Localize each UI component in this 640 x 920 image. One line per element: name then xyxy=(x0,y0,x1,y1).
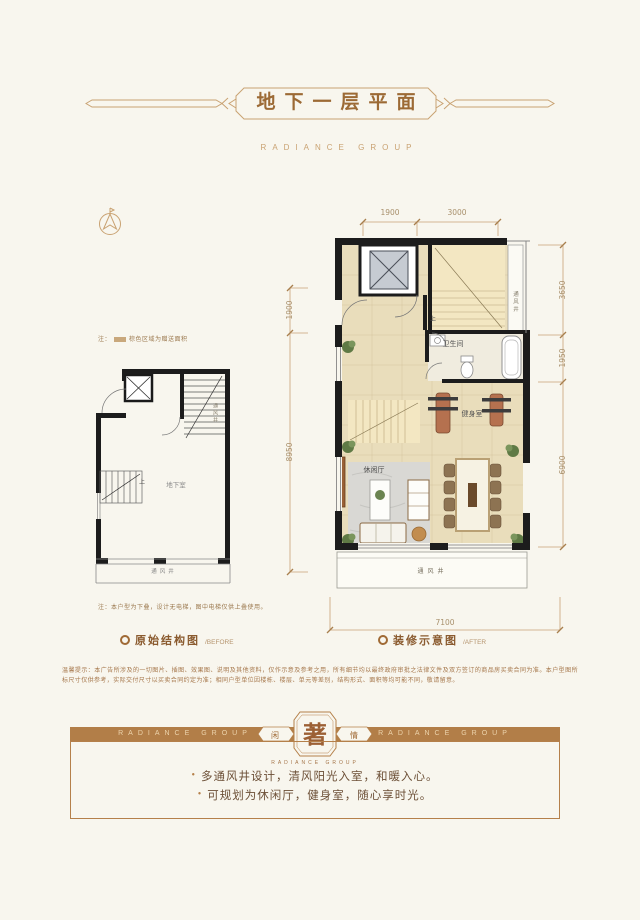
seal-left-char: 闲 xyxy=(271,731,279,740)
elevator-note: 注：本户型为下叠，设计无电梯，图中电梯仅供上叠使用。 xyxy=(98,602,267,611)
page-title: 地下一层平面 xyxy=(232,87,440,119)
legend-before-suffix: /BEFORE xyxy=(205,639,234,647)
dimension-label: 1900 xyxy=(283,291,297,329)
legend-bullet-icon xyxy=(378,635,388,645)
legend-after-suffix: /AFTER xyxy=(463,639,486,647)
stairs-upper xyxy=(184,376,225,438)
header-rule-right xyxy=(450,100,554,107)
before-floorplan: 通风井 地下室 上 通风井 xyxy=(88,353,240,605)
room-label: 地下室 xyxy=(156,479,196,489)
bathroom-label: 卫生间 xyxy=(432,339,474,349)
stairs-up-label: 上 xyxy=(428,314,438,323)
dimension-label: 3650 xyxy=(556,271,570,309)
stairs-mid xyxy=(100,471,142,503)
gym-label: 健身室 xyxy=(450,409,494,419)
stairs-up-label: 上 xyxy=(137,477,147,486)
gift-area-swatch xyxy=(114,337,126,342)
bullet-icon: • xyxy=(191,771,195,781)
elevator-shaft xyxy=(360,245,417,295)
selling-points: • 多通风井设计，清风阳光入室，和暖入心。 • 可规划为休闲厅，健身室，随心享时… xyxy=(70,768,560,803)
gift-area-note: 注：棕色区域为赠送面积 xyxy=(98,334,188,343)
brand-text-left: RADIANCE GROUP xyxy=(105,727,265,741)
legend-after-label: 装修示意图 xyxy=(393,632,458,648)
seal-right-char: 情 xyxy=(350,730,358,740)
elevator-shaft xyxy=(125,375,152,401)
dimension-label: 8950 xyxy=(283,433,297,471)
dimension-label: 7100 xyxy=(425,618,465,627)
compass-icon xyxy=(92,198,132,240)
brand-text-right: RADIANCE GROUP xyxy=(365,727,525,741)
bullet-icon: • xyxy=(198,790,202,800)
selling-point-text: 多通风井设计，清风阳光入室，和暖入心。 xyxy=(201,768,439,784)
dimension-label: 6900 xyxy=(556,446,570,484)
legend-before-label: 原始结构图 xyxy=(135,632,200,648)
selling-point-row: • 可规划为休闲厅，健身室，随心享时光。 xyxy=(198,787,433,803)
selling-point-row: • 多通风井设计，清风阳光入室，和暖入心。 xyxy=(191,768,438,784)
brochure-page: 地下一层平面 RADIANCE GROUP 注：棕色区域为赠送面积 xyxy=(0,0,640,920)
lounge-label: 休闲厅 xyxy=(352,465,396,475)
vent-shaft-label: 通风井 xyxy=(511,291,519,314)
header-rule-left xyxy=(86,100,222,107)
after-floorplan: 1900 3000 1900 8950 3650 1950 6900 7100 … xyxy=(280,195,585,640)
legend-before: 原始结构图 /BEFORE xyxy=(120,633,234,647)
vent-shaft-label: 通风井 xyxy=(211,403,218,424)
dimension-label: 1900 xyxy=(370,208,410,217)
stairs-mid xyxy=(348,400,420,443)
stairs-upper xyxy=(432,245,505,333)
vent-shaft-label: 通风井 xyxy=(133,567,195,575)
brand-subtitle: RADIANCE GROUP xyxy=(136,143,536,152)
legend-after: 装修示意图 /AFTER xyxy=(378,633,486,647)
vent-shaft-right xyxy=(508,245,523,333)
vent-shaft-label: 通风井 xyxy=(390,566,475,575)
dimension-label: 3000 xyxy=(437,208,477,217)
selling-point-text: 可规划为休闲厅，健身室，随心享时光。 xyxy=(207,787,432,803)
disclaimer-text: 温馨提示：本广告所涉及的一切图片、插图、效果图、说明及其他资料，仅作示意及参考之… xyxy=(62,666,578,686)
legend-bullet-icon xyxy=(120,635,130,645)
dimension-label: 1950 xyxy=(556,339,570,377)
